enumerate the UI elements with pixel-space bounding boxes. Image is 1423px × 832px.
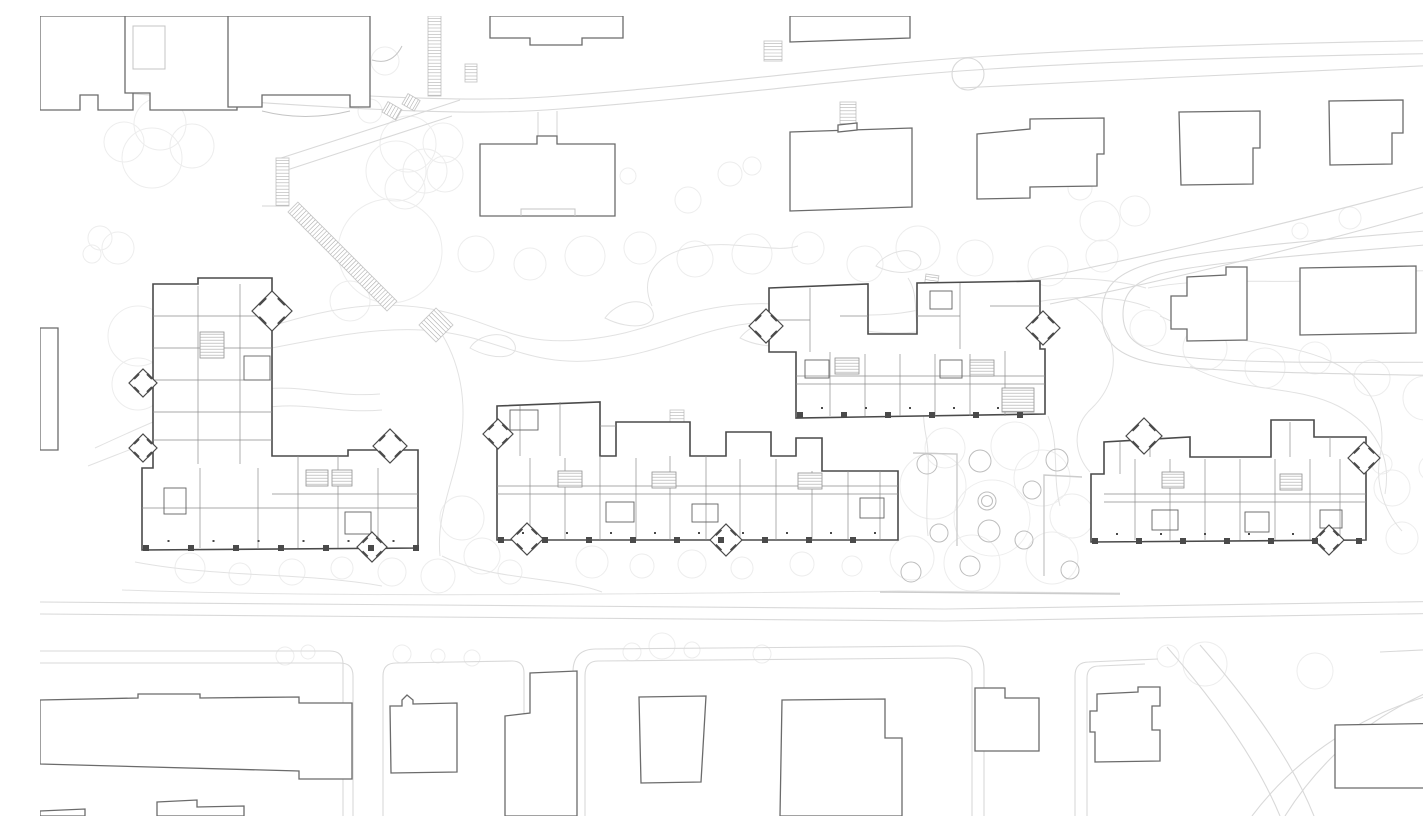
- tree-canopy: [1050, 494, 1094, 538]
- planter-ring: [960, 556, 980, 576]
- context-building-detail: [372, 46, 402, 61]
- facade-pier: [841, 412, 847, 418]
- facade-pier: [323, 545, 329, 551]
- tree-canopy: [1374, 470, 1410, 506]
- facade-column-dot: [874, 532, 876, 534]
- facade-pier: [1312, 538, 1318, 544]
- facade-column-dot: [303, 540, 305, 542]
- facade-pier: [1180, 538, 1186, 544]
- tree-canopy: [743, 157, 761, 175]
- planter-ring: [978, 492, 996, 510]
- context-building: [228, 16, 370, 107]
- garden-path: [135, 562, 382, 586]
- stair-core: [1280, 474, 1302, 490]
- road-edge: [40, 613, 1423, 621]
- residential-block-center: [483, 402, 898, 556]
- context-building: [1335, 723, 1423, 788]
- tree-canopy: [421, 559, 455, 593]
- tree-canopy: [1292, 223, 1308, 239]
- planter-ring: [930, 524, 948, 542]
- facade-pier: [973, 412, 979, 418]
- facade-column-dot: [786, 532, 788, 534]
- facade-column-dot: [213, 540, 215, 542]
- tree-canopy: [1297, 653, 1333, 689]
- planter-ring: [1015, 531, 1033, 549]
- facade-pier: [498, 537, 504, 543]
- tree-canopy: [1339, 207, 1361, 229]
- tree-canopy: [792, 232, 824, 264]
- context-building: [1171, 267, 1247, 341]
- facade-pier: [278, 545, 284, 551]
- garden-path: [1048, 416, 1060, 506]
- planter-ring: [901, 562, 921, 582]
- facade-column-dot: [953, 407, 955, 409]
- stair-core: [306, 470, 328, 486]
- tree-canopy: [1080, 201, 1120, 241]
- tree-canopy: [896, 226, 940, 270]
- facade-pier: [413, 545, 419, 551]
- planter-ring: [1023, 481, 1041, 499]
- tree-canopy: [1403, 376, 1423, 420]
- facade-pier: [1356, 538, 1362, 544]
- tree-canopy: [1299, 342, 1331, 374]
- tree-canopy: [431, 649, 445, 663]
- planter-ring: [978, 520, 1000, 542]
- stair-ramp: [288, 202, 397, 311]
- facade-pier: [1268, 538, 1274, 544]
- tree-canopy: [104, 122, 144, 162]
- facade-column-dot: [393, 540, 395, 542]
- stair-ramp-edge: [764, 41, 782, 61]
- residential-block-east: [1091, 418, 1380, 555]
- facade-pier: [143, 545, 149, 551]
- facade-pier: [1224, 538, 1230, 544]
- facade-column-dot: [698, 532, 700, 534]
- facade-column-dot: [522, 532, 524, 534]
- context-building: [977, 118, 1104, 199]
- tree-canopy: [944, 535, 1000, 591]
- road-edge: [278, 104, 448, 159]
- context-building-detail: [262, 111, 350, 117]
- stair-core: [798, 473, 822, 489]
- tree-canopy: [1183, 642, 1227, 686]
- tree-canopy: [276, 647, 294, 665]
- facade-column-dot: [909, 407, 911, 409]
- tree-canopy: [393, 645, 411, 663]
- planter-ring: [982, 496, 993, 507]
- stair-ramp: [428, 16, 441, 96]
- context-building: [975, 688, 1039, 751]
- context-building: [1329, 100, 1403, 165]
- facade-column-dot: [168, 540, 170, 542]
- context-building: [780, 699, 902, 816]
- facade-column-dot: [610, 532, 612, 534]
- tree-canopy: [991, 422, 1039, 470]
- tree-canopy: [279, 559, 305, 585]
- facade-pier: [233, 545, 239, 551]
- facade-pier: [1092, 538, 1098, 544]
- tree-canopy: [649, 633, 675, 659]
- garden-wall-layer: [880, 453, 1120, 594]
- stair-core: [332, 470, 352, 486]
- garden-path: [438, 328, 463, 556]
- stair-ramp-edge: [402, 94, 420, 111]
- stair-ramp: [402, 94, 420, 111]
- facade-column-dot: [566, 532, 568, 534]
- tree-canopy: [175, 553, 205, 583]
- tree-canopy: [630, 554, 654, 578]
- tree-canopy: [718, 162, 742, 186]
- tree-canopy: [338, 199, 442, 303]
- road-edge: [284, 116, 452, 171]
- facade-pier: [1017, 412, 1023, 418]
- facade-column-dot: [1292, 533, 1294, 535]
- tree-canopy: [1130, 310, 1166, 346]
- context-building: [639, 696, 706, 783]
- tree-canopy: [1245, 348, 1285, 388]
- tree-canopy: [576, 546, 608, 578]
- parcel-boundary: [573, 646, 984, 816]
- tree-canopy: [1386, 522, 1418, 554]
- facade-column-dot: [348, 540, 350, 542]
- tree-canopy: [954, 480, 1030, 556]
- tree-canopy: [1419, 455, 1423, 481]
- stair-core: [1002, 388, 1034, 412]
- tree-canopy: [732, 234, 772, 274]
- road-edge: [960, 64, 1423, 88]
- tree-canopy: [925, 428, 965, 468]
- tree-canopy: [514, 248, 546, 280]
- tree-canopy: [423, 123, 463, 163]
- facade-column-dot: [1248, 533, 1250, 535]
- facade-pier: [762, 537, 768, 543]
- context-building: [40, 809, 85, 816]
- context-building: [790, 16, 910, 42]
- tree-canopy: [890, 536, 934, 580]
- facade-column-dot: [1336, 533, 1338, 535]
- facade-column-dot: [1160, 533, 1162, 535]
- facade-column-dot: [865, 407, 867, 409]
- facade-pier: [806, 537, 812, 543]
- stair-core: [970, 360, 994, 376]
- culdesac-edge: [952, 58, 984, 90]
- context-building: [1300, 266, 1416, 335]
- stair-core: [652, 472, 676, 488]
- tree-canopy: [1120, 196, 1150, 226]
- tree-canopy: [684, 642, 700, 658]
- tree-canopy: [170, 124, 214, 168]
- road-edge: [448, 100, 460, 104]
- road-edge: [1380, 648, 1423, 652]
- tree-canopy: [458, 236, 494, 272]
- tree-canopy: [498, 560, 522, 584]
- tree-canopy: [842, 556, 862, 576]
- facade-column-dot: [1116, 533, 1118, 535]
- residential-block-west: [129, 278, 419, 562]
- facade-pier: [368, 545, 374, 551]
- residential-block-north: [749, 281, 1060, 418]
- tree-canopy: [83, 245, 101, 263]
- road-edge: [40, 601, 1423, 609]
- facade-column-dot: [1204, 533, 1206, 535]
- facade-pier: [929, 412, 935, 418]
- tree-canopy: [624, 232, 656, 264]
- facade-column-dot: [258, 540, 260, 542]
- facade-pier: [718, 537, 724, 543]
- stair-core: [200, 332, 224, 358]
- context-building: [505, 671, 577, 816]
- context-building: [838, 123, 857, 132]
- stair-core-edge: [200, 332, 224, 358]
- tree-canopy: [623, 643, 641, 661]
- facade-pier: [1136, 538, 1142, 544]
- context-building: [157, 800, 244, 816]
- facade-pier: [586, 537, 592, 543]
- garden-path: [605, 302, 653, 326]
- facade-pier: [850, 537, 856, 543]
- stair-ramp: [465, 64, 477, 82]
- tree-canopy: [957, 240, 993, 276]
- tree-canopy: [900, 453, 966, 519]
- tree-canopy: [301, 645, 315, 659]
- tree-canopy: [464, 538, 500, 574]
- tree-canopy: [440, 496, 484, 540]
- stair-core: [1162, 472, 1184, 488]
- facade-column-dot: [830, 532, 832, 534]
- tree-canopy: [678, 550, 706, 578]
- context-building: [1179, 111, 1260, 185]
- garden-wall: [1044, 475, 1082, 576]
- stair-core: [558, 471, 582, 487]
- tree-canopy: [565, 236, 605, 276]
- tree-canopy: [378, 558, 406, 586]
- context-building: [40, 328, 58, 450]
- context-building: [390, 695, 457, 773]
- tree-canopy: [464, 650, 480, 666]
- facade-pier: [542, 537, 548, 543]
- tree-canopy: [675, 187, 701, 213]
- facade-column-dot: [997, 407, 999, 409]
- building-outline: [497, 402, 898, 540]
- planter-ring: [1046, 449, 1068, 471]
- tree-canopy: [1014, 450, 1070, 506]
- facade-pier: [797, 412, 803, 418]
- tree-canopy: [790, 552, 814, 576]
- planter-ring: [969, 450, 991, 472]
- facade-column-dot: [821, 407, 823, 409]
- context-building: [40, 694, 352, 779]
- facade-column-dot: [742, 532, 744, 534]
- site-plan-svg: [40, 16, 1423, 816]
- context-building: [490, 16, 623, 45]
- tree-canopy: [1026, 532, 1078, 584]
- site-plan-figure: [40, 16, 1423, 816]
- stair-ramp: [764, 41, 782, 61]
- tree-canopy: [331, 557, 353, 579]
- tree-canopy: [88, 226, 112, 250]
- tree-canopy: [620, 168, 636, 184]
- facade-pier: [188, 545, 194, 551]
- context-building: [40, 16, 133, 110]
- facade-column-dot: [654, 532, 656, 534]
- context-building: [1090, 687, 1160, 762]
- garden-path: [470, 335, 515, 357]
- context-building: [790, 128, 912, 211]
- facade-pier: [674, 537, 680, 543]
- stair-core: [835, 358, 859, 374]
- tree-canopy: [1354, 360, 1390, 396]
- facade-pier: [885, 412, 891, 418]
- tree-canopy: [385, 169, 425, 209]
- facade-pier: [630, 537, 636, 543]
- tree-canopy: [731, 557, 753, 579]
- stair-ramp: [276, 158, 289, 206]
- context-building: [480, 136, 615, 216]
- context-building: [125, 16, 237, 110]
